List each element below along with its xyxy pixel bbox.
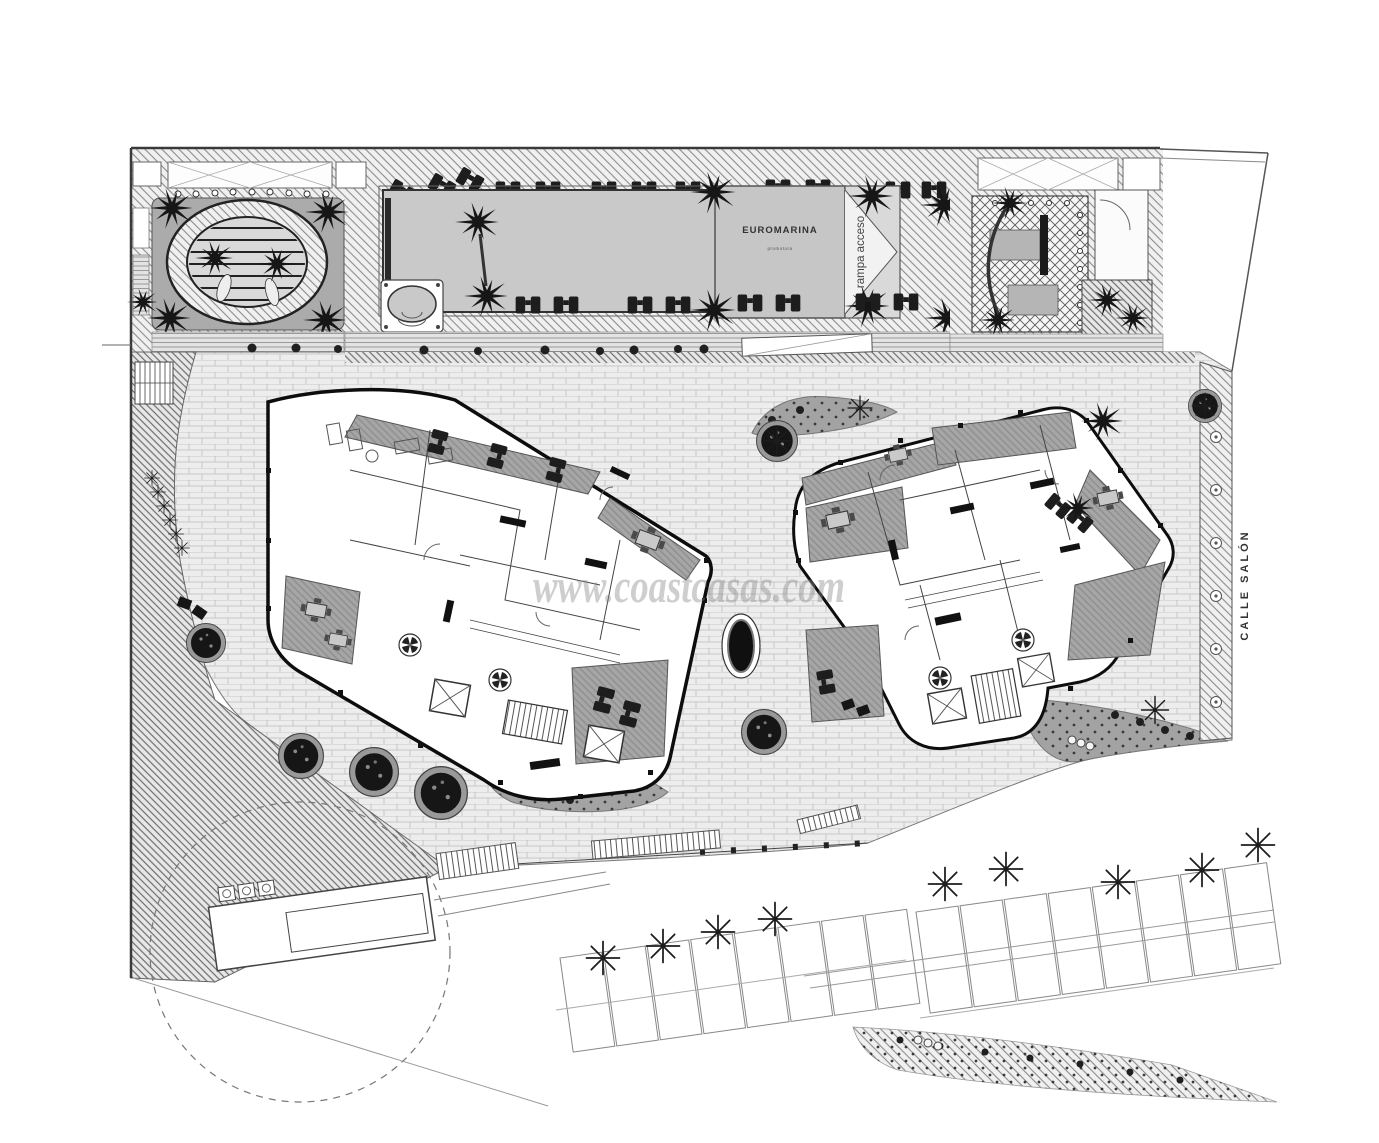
street-tree-icon (1211, 697, 1222, 708)
street-tree-icon (1211, 432, 1222, 443)
pond (722, 614, 760, 678)
pergola (135, 362, 173, 404)
vent-fan-icon (399, 634, 421, 656)
spa-pool (381, 280, 443, 332)
ramp-label: rampa acceso (855, 216, 867, 288)
vent-fan-icon (929, 667, 951, 689)
palm-asterisk-icon (848, 396, 872, 420)
round-planter-icon (350, 748, 399, 797)
street-tree-icon (1211, 644, 1222, 655)
pool-building-label: EUROMARINA (742, 225, 817, 236)
palm-asterisk-icon (1142, 697, 1169, 724)
street-label: CALLE SALÓN (1238, 529, 1251, 640)
site-plan-page: EUROMARINA promotora rampa acceso (0, 0, 1379, 1143)
lattice-garden (950, 148, 1163, 352)
elevator-shaft-icon (583, 725, 624, 763)
street-tree-icon (1211, 591, 1222, 602)
vent-fan-icon (489, 669, 511, 691)
round-planter-icon (415, 767, 468, 820)
stairwell (971, 669, 1021, 724)
round-planter-icon (279, 734, 324, 779)
palm-asterisk-icon (764, 428, 791, 455)
pool-building-subtitle: promotora (767, 246, 792, 251)
vent-fan-icon (1012, 629, 1034, 651)
entry-walk (742, 334, 873, 357)
elevator-shaft-icon (1018, 653, 1055, 687)
site-plan-drawing: EUROMARINA promotora rampa acceso (0, 0, 1379, 1143)
round-planter-icon (187, 624, 226, 663)
elevator-shaft-icon (429, 679, 470, 717)
round-planter-icon (742, 710, 787, 755)
watermark: www.coastcasas.com (533, 560, 845, 613)
palm-asterisk-icon (1192, 393, 1218, 419)
street-tree-icon (1211, 538, 1222, 549)
elevator-shaft-icon (928, 688, 967, 724)
street-tree-icon (1211, 485, 1222, 496)
